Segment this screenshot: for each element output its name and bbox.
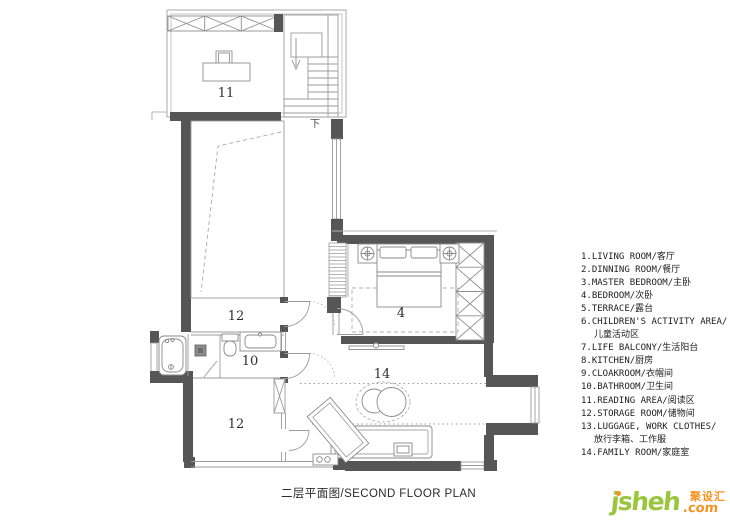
bathroom: [150, 331, 281, 383]
bay-window: [484, 375, 539, 461]
room-label-reading: 11: [218, 86, 235, 101]
legend-item: 3.MASTER BEDROOM/主卧: [581, 277, 729, 290]
legend-item: 12.STORAGE ROOM/储物间: [581, 408, 729, 421]
room-label-storage-lower: 12: [228, 417, 245, 432]
family-room: [300, 343, 539, 471]
top-cabinet: [168, 14, 283, 32]
bathtub: [159, 336, 186, 375]
room-label-storage-upper: 12: [228, 309, 245, 324]
room-label-bedroom: 4: [397, 306, 405, 321]
shower-drain: [195, 345, 206, 356]
wall: [181, 112, 191, 332]
door-bathroom: [285, 354, 310, 379]
legend-item: 11.READING AREA/阅读区: [581, 395, 729, 408]
legend-item: 6.CHILDREN'S ACTIVITY AREA/: [581, 316, 729, 329]
legend-item: 4.BEDROOM/次卧: [581, 290, 729, 303]
louver-closet: [329, 243, 348, 297]
laptop: [394, 443, 412, 456]
nightstand-right: [440, 244, 459, 263]
room-label-family-room: 14: [374, 367, 391, 382]
reading-desk: [203, 51, 250, 81]
door-storage-lower: [289, 431, 309, 451]
legend-item: 14.FAMILY ROOM/家庭室: [581, 447, 729, 460]
legend-item: 7.LIFE BALCONY/生活阳台: [581, 342, 729, 355]
legend-item-wrap: 放行李箱、工作服: [581, 434, 729, 447]
wardrobe: [456, 243, 484, 340]
bed: [377, 244, 441, 307]
legend: 1.LIVING ROOM/客厅 2.DINNING ROOM/餐厅 3.MAS…: [581, 251, 729, 460]
logo-tld-text: .com: [682, 501, 719, 516]
legend-item-wrap: 儿童活动区: [581, 329, 729, 342]
legend-item: 2.DINNING ROOM/餐厅: [581, 264, 729, 277]
room-label-bathroom: 10: [242, 354, 259, 369]
legend-item: 1.LIVING ROOM/客厅: [581, 251, 729, 264]
floor-plan-page: 11 12 10 12 4 14 下 1.LIVING ROOM/客厅 2.DI…: [0, 0, 730, 523]
pouf-table: [362, 388, 406, 417]
stairs-down-arrow: [292, 38, 300, 69]
site-logo[interactable]: jsheh 聚设汇 .com: [609, 486, 728, 520]
stairs-down-label: 下: [310, 119, 320, 130]
legend-item: 8.KITCHEN/厨房: [581, 355, 729, 368]
door-storage-upper: [285, 302, 310, 327]
plan-title: 二层平面图/SECOND FLOOR PLAN: [281, 485, 481, 501]
east-window-wall: [331, 119, 343, 241]
vanity-sink: [240, 332, 281, 351]
legend-item: 9.CLOAKROOM/衣帽间: [581, 368, 729, 381]
legend-item: 5.TERRACE/露台: [581, 303, 729, 316]
sloped-ceiling-dashed: [201, 132, 281, 292]
bedroom: [327, 231, 497, 344]
side-counter: [313, 454, 338, 465]
shaft-column: [274, 379, 285, 413]
legend-item: 10.BATHROOM/卫生间: [581, 381, 729, 394]
legend-item: 13.LUGGAGE, WORK CLOTHES/: [581, 421, 729, 434]
nightstand-left: [358, 244, 377, 263]
toilet: [222, 334, 238, 356]
staircase: [284, 15, 338, 117]
shower-door: [204, 361, 217, 377]
logo-j-dot-icon: [616, 491, 621, 496]
storage-room-upper: [170, 112, 284, 335]
